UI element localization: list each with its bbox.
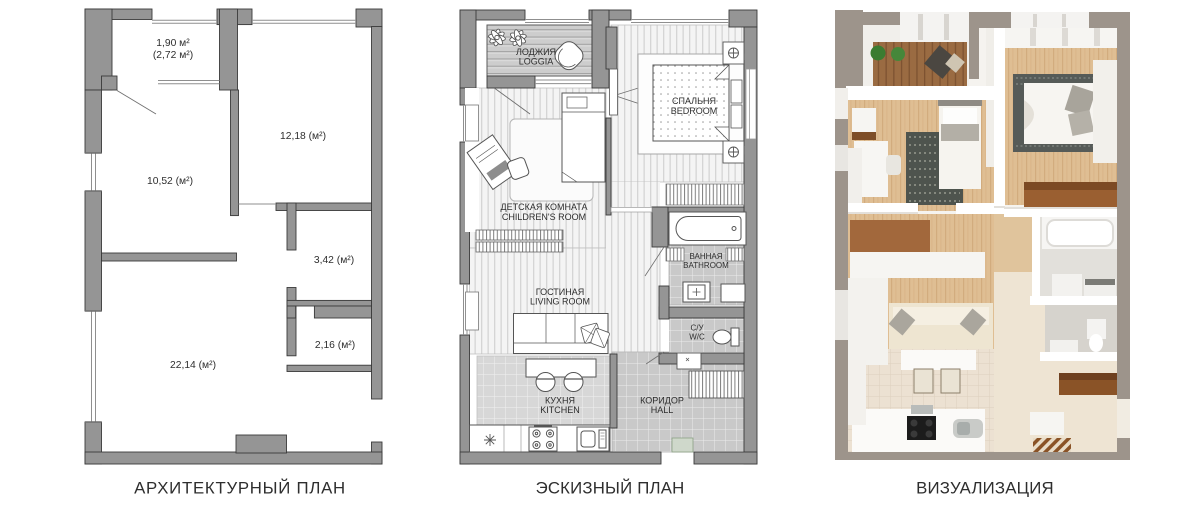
svg-text:СПАЛЬНЯ: СПАЛЬНЯ bbox=[672, 96, 716, 106]
svg-text:ЛОДЖИЯ: ЛОДЖИЯ bbox=[516, 47, 556, 57]
svg-text:12,18 (м²): 12,18 (м²) bbox=[280, 131, 326, 142]
svg-text:BEDROOM: BEDROOM bbox=[671, 106, 718, 116]
svg-text:ВАННАЯ: ВАННАЯ bbox=[689, 252, 722, 261]
svg-text:3,42 (м²): 3,42 (м²) bbox=[314, 255, 354, 266]
svg-text:CHILDREN'S ROOM: CHILDREN'S ROOM bbox=[502, 212, 586, 222]
svg-text:LOGGIA: LOGGIA bbox=[519, 57, 554, 67]
svg-text:2,16 (м²): 2,16 (м²) bbox=[315, 340, 355, 351]
svg-text:HALL: HALL bbox=[651, 405, 674, 415]
svg-text:BATHROOM: BATHROOM bbox=[683, 261, 729, 270]
svg-text:КУХНЯ: КУХНЯ bbox=[545, 396, 575, 406]
svg-text:ЭСКИЗНЫЙ ПЛАН: ЭСКИЗНЫЙ ПЛАН bbox=[536, 479, 685, 498]
svg-text:1,90 м²: 1,90 м² bbox=[156, 38, 190, 49]
svg-text:LIVING ROOM: LIVING ROOM bbox=[530, 297, 590, 307]
svg-text:KITCHEN: KITCHEN bbox=[540, 405, 580, 415]
svg-text:ГОСТИНАЯ: ГОСТИНАЯ bbox=[536, 287, 585, 297]
svg-text:АРХИТЕКТУРНЫЙ ПЛАН: АРХИТЕКТУРНЫЙ ПЛАН bbox=[134, 479, 346, 498]
svg-text:22,14 (м²): 22,14 (м²) bbox=[170, 360, 216, 371]
svg-text:W/C: W/C bbox=[689, 333, 705, 342]
svg-text:КОРИДОР: КОРИДОР bbox=[640, 396, 684, 406]
svg-text:ВИЗУАЛИЗАЦИЯ: ВИЗУАЛИЗАЦИЯ bbox=[916, 479, 1054, 498]
svg-text:ДЕТСКАЯ КОМНАТА: ДЕТСКАЯ КОМНАТА bbox=[501, 202, 588, 212]
svg-text:С/У: С/У bbox=[690, 324, 704, 333]
svg-text:10,52 (м²): 10,52 (м²) bbox=[147, 176, 193, 187]
svg-text:(2,72 м²): (2,72 м²) bbox=[153, 50, 193, 61]
